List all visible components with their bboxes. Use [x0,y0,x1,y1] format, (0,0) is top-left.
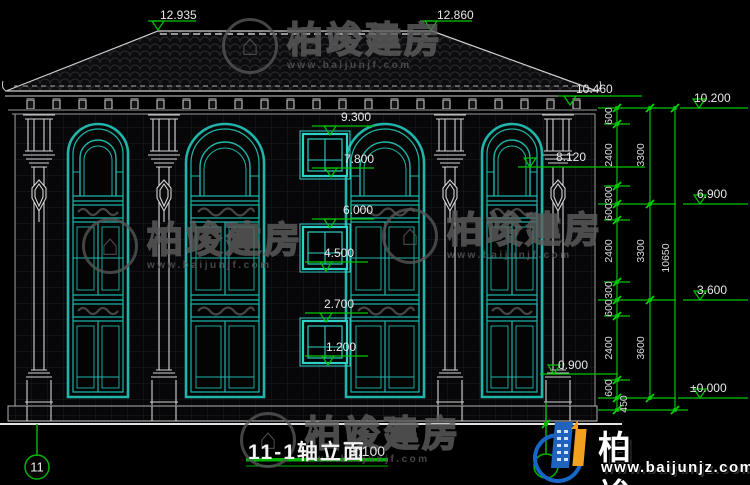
dim-storey: 3600 [635,336,647,359]
drawing-scale: 1:100 [350,443,385,459]
watermark-brand: 柏竣建房 [287,21,443,59]
dim-segment: 300 [603,186,615,204]
watermark: ⌂ 柏竣建房 www.baijunjf.com [82,218,303,274]
elev-level-label: ±0.000 [690,381,727,395]
dim-segment: 450 [618,395,630,413]
dim-total: 10650 [660,243,672,272]
watermark-brand: 柏竣建房 [447,211,603,249]
dim-segment: 600 [603,379,615,397]
watermark-url: www.baijunjf.com [447,250,603,261]
watermark-logo-icon: ⌂ [82,218,138,274]
watermark-url: www.baijunjf.com [147,260,303,271]
dim-segment: 2400 [603,336,615,359]
elevation-drawing: ⌂ 柏竣建房 www.baijunjf.com ⌂ 柏竣建房 www.baiju… [0,0,750,485]
drawing-title: 11-1轴立面 [248,436,366,466]
dim-storey: 3300 [635,143,647,166]
elev-window-label: 9.300 [341,110,371,124]
elev-window-label: 2.700 [324,297,354,311]
dim-segment: 600 [603,299,615,317]
watermark-logo-icon: ⌂ [222,18,278,74]
elev-capital-label: 8.120 [556,150,586,164]
axis-bubble-label: 11 [30,460,44,475]
elev-ridge-right-label: 12.860 [437,8,474,22]
elev-ridge-left-label: 12.935 [160,8,197,22]
elev-level-label: 3.600 [697,283,727,297]
elev-window-label: 6.000 [343,203,373,217]
watermark-logo-icon: ⌂ [382,208,438,264]
elev-window-label: 4.500 [324,246,354,260]
dim-segment: 600 [603,107,615,125]
dim-segment: 600 [603,203,615,221]
elev-level-label: 6.900 [697,187,727,201]
dim-storey: 3300 [635,239,647,262]
cornice [5,91,600,114]
dim-segment: 2400 [603,239,615,262]
footer-logo-building-icon [533,420,597,483]
watermark-brand: 柏竣建房 [147,221,303,259]
dim-segment: 2400 [603,143,615,166]
footer-url: www.baijunjz.com [601,459,750,476]
elev-window-label: 7.800 [344,152,374,166]
watermark: ⌂ 柏竣建房 www.baijunjf.com [382,208,603,264]
elev-eave-label: 10.460 [576,82,613,96]
elev-level-label: 10.200 [694,91,731,105]
watermark-url: www.baijunjf.com [287,60,443,71]
dim-segment: 300 [603,281,615,299]
elev-window-label: 1.200 [326,340,356,354]
watermark: ⌂ 柏竣建房 www.baijunjf.com [222,18,443,74]
elev-plinth-label: 0.900 [558,358,588,372]
